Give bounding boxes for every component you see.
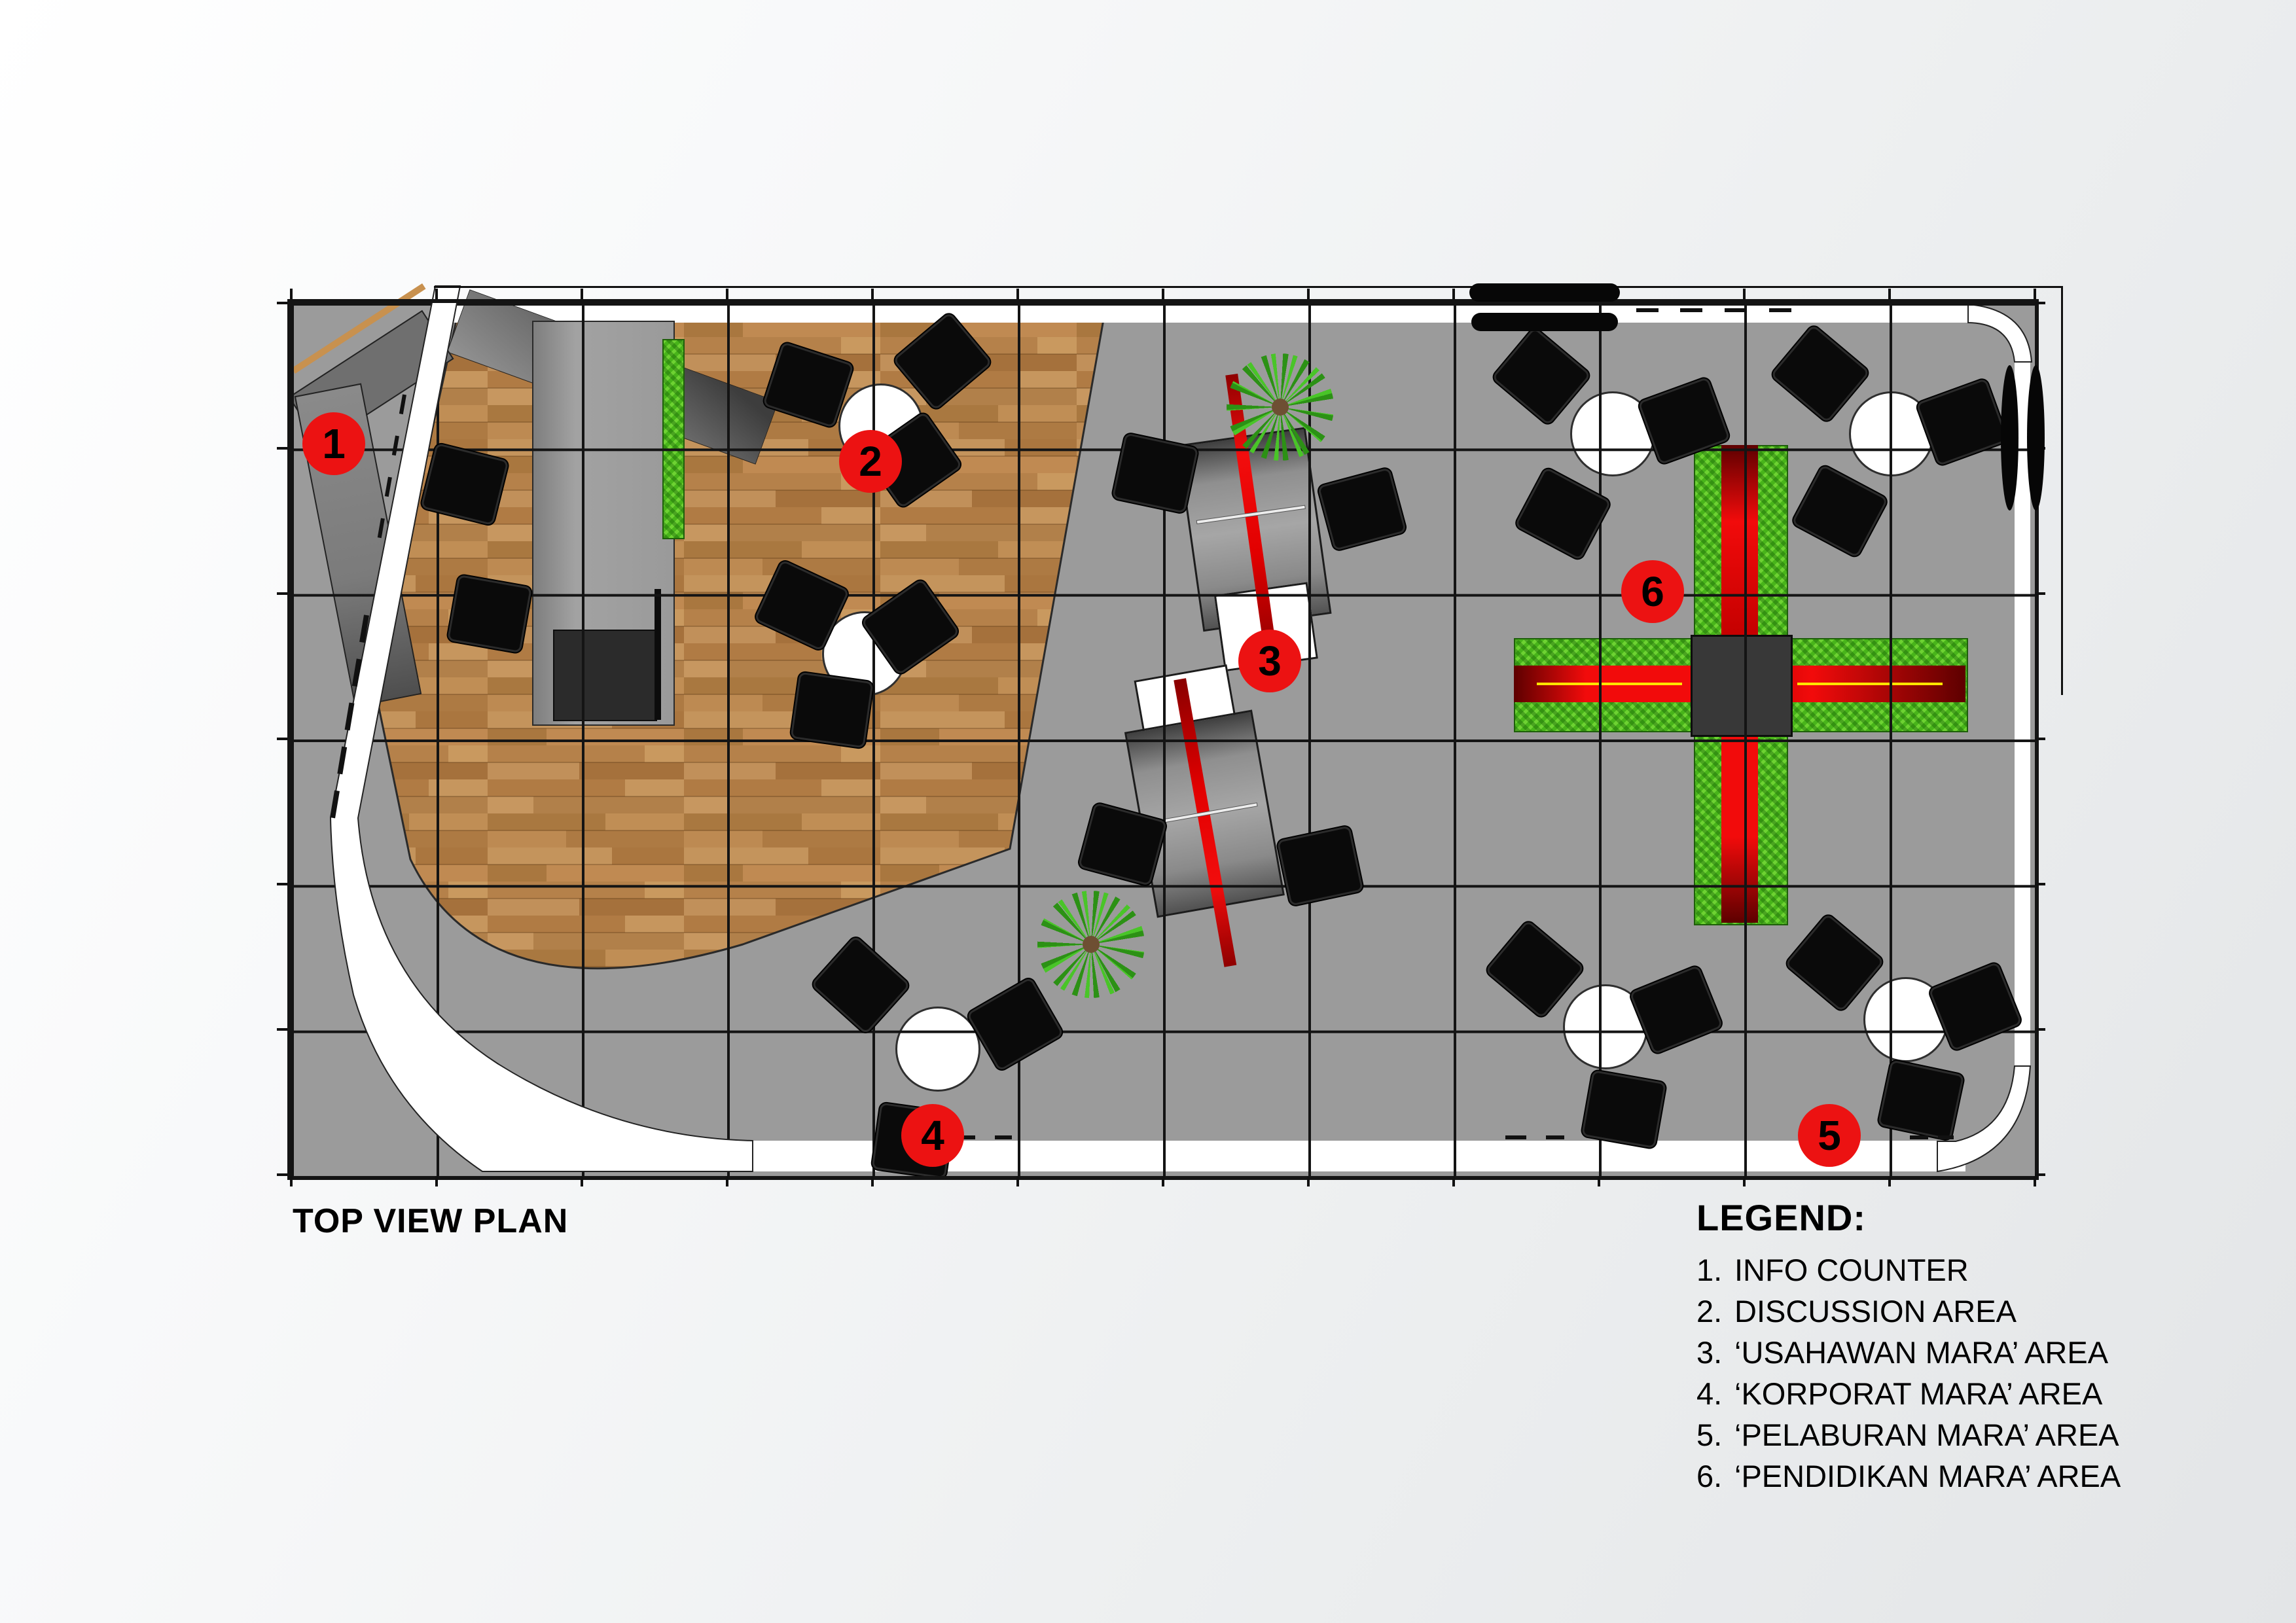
legend-item-number: 2.	[1696, 1291, 1734, 1332]
edge-panel-right-inner	[2001, 365, 2018, 510]
chair	[790, 672, 873, 749]
plan-title: TOP VIEW PLAN	[293, 1202, 568, 1241]
dimension-tick	[277, 883, 287, 885]
aisle-mark	[1546, 1135, 1564, 1139]
dimension-tick	[277, 447, 287, 450]
dimension-tick	[2035, 738, 2045, 740]
dimension-tick	[2034, 289, 2036, 299]
dimension-tick	[581, 289, 583, 299]
dimension-tick	[1162, 289, 1164, 299]
floor-plan: 123456	[291, 303, 2035, 1176]
legend-item-label: ‘PELABURAN MARA’ AREA	[1734, 1418, 2119, 1452]
dimension-tick	[1888, 1176, 1891, 1186]
dimension-tick	[1743, 289, 1746, 299]
dimension-tick	[435, 289, 438, 299]
dimension-tick	[871, 289, 874, 299]
legend-item-label: ‘KORPORAT MARA’ AREA	[1734, 1376, 2102, 1411]
dimension-tick	[290, 1176, 293, 1186]
chair	[1581, 1070, 1666, 1149]
page-background: 123456 TOP VIEW PLAN LEGEND: 1.INFO COUN…	[0, 0, 2296, 1623]
legend-item-label: INFO COUNTER	[1734, 1253, 1969, 1287]
dimension-tick	[277, 738, 287, 740]
legend-item-number: 5.	[1696, 1414, 1734, 1455]
legend-item-5: 5.‘PELABURAN MARA’ AREA	[1696, 1414, 2121, 1455]
legend-item-6: 6.‘PENDIDIKAN MARA’ AREA	[1696, 1455, 2121, 1497]
legend-heading: LEGEND:	[1696, 1196, 2121, 1239]
aisle-mark	[1938, 1135, 1954, 1139]
aisle-mark	[1910, 1135, 1928, 1139]
edge-panel-right-outer	[2027, 365, 2045, 510]
legend-item-number: 1.	[1696, 1249, 1734, 1291]
dimension-tick	[2034, 1176, 2036, 1186]
area-marker-6: 6	[1621, 560, 1684, 623]
aisle-mark	[995, 1135, 1012, 1139]
legend-item-label: ‘USAHAWAN MARA’ AREA	[1734, 1335, 2108, 1370]
dimension-tick	[726, 1176, 728, 1186]
dimension-tick	[2035, 1028, 2045, 1031]
dimension-tick	[1307, 1176, 1310, 1186]
dimension-tick	[1888, 289, 1891, 299]
legend-item-4: 4.‘KORPORAT MARA’ AREA	[1696, 1373, 2121, 1414]
legend-item-number: 6.	[1696, 1455, 1734, 1497]
dimension-tick	[1743, 1176, 1746, 1186]
area-marker-4: 4	[901, 1104, 964, 1167]
legend-item-label: DISCUSSION AREA	[1734, 1294, 2017, 1329]
entrance-walkway	[291, 303, 2035, 1176]
dimension-tick	[726, 289, 728, 299]
dimension-tick	[277, 1028, 287, 1031]
dimension-tick	[1307, 289, 1310, 299]
legend-item-number: 4.	[1696, 1373, 1734, 1414]
dimension-tick	[290, 289, 293, 299]
chair	[447, 575, 532, 653]
dimension-tick	[2035, 592, 2045, 595]
aisle-mark	[1725, 308, 1747, 312]
plant	[1037, 891, 1145, 998]
dimension-tick	[277, 302, 287, 304]
dimension-tick	[2035, 302, 2045, 304]
area-marker-2: 2	[839, 430, 902, 493]
dimension-tick	[277, 1173, 287, 1176]
legend-item-2: 2.DISCUSSION AREA	[1696, 1291, 2121, 1332]
dimension-tick	[1452, 1176, 1455, 1186]
dimension-tick	[1162, 1176, 1164, 1186]
legend-item-number: 3.	[1696, 1332, 1734, 1373]
dimension-tick	[581, 1176, 583, 1186]
legend: LEGEND: 1.INFO COUNTER2.DISCUSSION AREA3…	[1696, 1196, 2121, 1497]
area-marker-5: 5	[1798, 1104, 1861, 1167]
dimension-tick	[277, 592, 287, 595]
aisle-mark	[1769, 308, 1791, 312]
aisle-mark	[1505, 1135, 1526, 1139]
area-marker-3: 3	[1238, 630, 1301, 692]
outer-line-top	[434, 286, 2063, 288]
dimension-tick	[1016, 1176, 1019, 1186]
dimension-tick	[2035, 1173, 2045, 1176]
dimension-tick	[2035, 883, 2045, 885]
dimension-tick	[871, 1176, 874, 1186]
legend-item-label: ‘PENDIDIKAN MARA’ AREA	[1734, 1459, 2121, 1493]
area-marker-1: 1	[302, 412, 365, 475]
legend-item-1: 1.INFO COUNTER	[1696, 1249, 2121, 1291]
hanging-sign-top-inner	[1471, 313, 1618, 331]
plant	[1227, 353, 1334, 461]
dimension-tick	[435, 1176, 438, 1186]
dimension-tick	[1598, 1176, 1600, 1186]
hanging-sign-top-outer	[1469, 283, 1620, 302]
aisle-mark	[1680, 308, 1702, 312]
legend-item-3: 3.‘USAHAWAN MARA’ AREA	[1696, 1332, 2121, 1373]
dimension-tick	[1452, 289, 1455, 299]
aisle-mark	[1636, 308, 1659, 312]
outer-line-right	[2061, 286, 2063, 695]
dimension-tick	[1016, 289, 1019, 299]
